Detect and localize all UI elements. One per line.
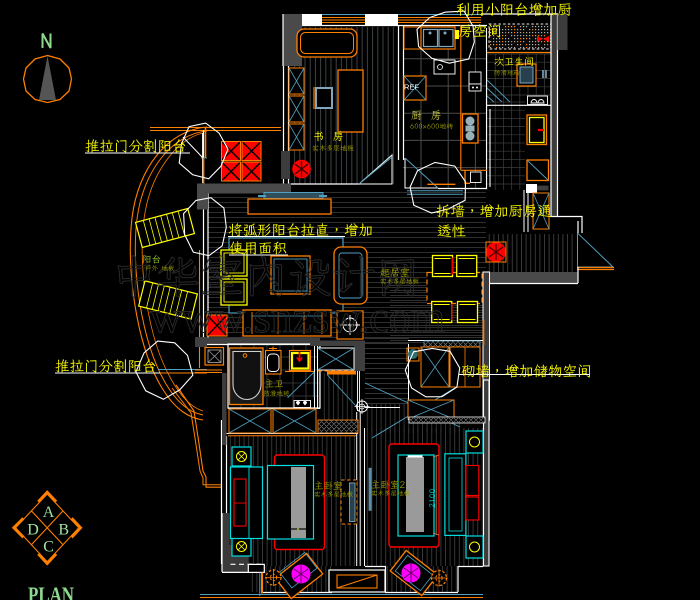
svg-text:A: A bbox=[43, 504, 55, 521]
svg-text:D: D bbox=[27, 522, 39, 539]
svg-text:www.snzsw.com: www.snzsw.com bbox=[150, 293, 445, 342]
svg-text:B: B bbox=[58, 522, 69, 539]
svg-text:C: C bbox=[43, 539, 54, 556]
svg-text:REF: REF bbox=[404, 83, 419, 92]
svg-text:PLAN: PLAN bbox=[28, 582, 74, 600]
